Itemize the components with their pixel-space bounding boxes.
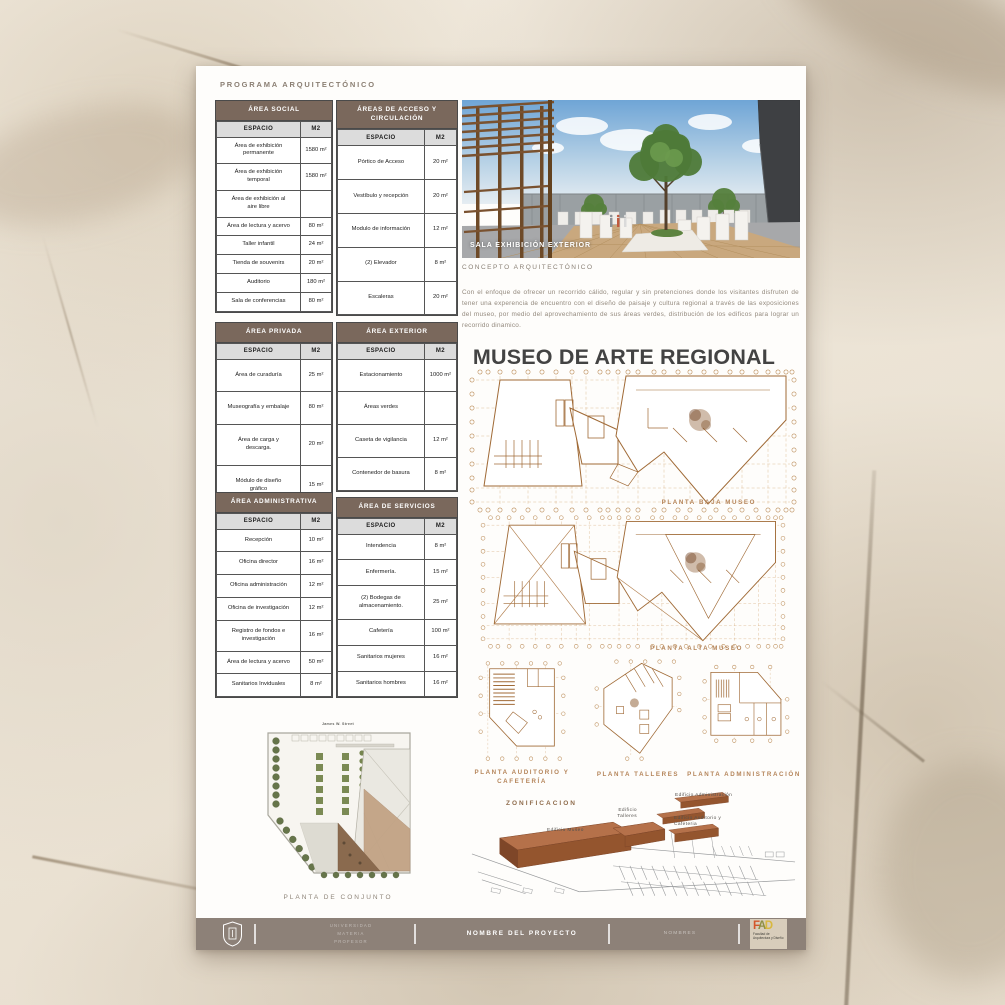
- planta-administracion-label: PLANTA ADMINISTRACIÓN: [684, 770, 804, 779]
- space-name: Áreas verdes: [338, 392, 425, 425]
- space-name: Sanitarios mujeres: [338, 645, 425, 671]
- column-header: M2: [300, 121, 331, 137]
- edificio-auditorio-label: Edificio Auditorio y Cafeteria: [674, 816, 722, 828]
- table-row: Enfermería.15 m²: [338, 560, 457, 586]
- footer-divider: [608, 924, 610, 944]
- space-name: Modulo de información: [338, 213, 425, 247]
- space-area-value: 20 m²: [424, 180, 456, 214]
- space-area-value: 80 m²: [300, 392, 331, 425]
- planta-baja-drawing: [468, 368, 798, 514]
- column-header: M2: [424, 518, 456, 534]
- space-area-value: 80 m²: [300, 217, 331, 236]
- planta-talleres-label: PLANTA TALLERES: [586, 770, 690, 779]
- space-name: Pórtico de Acceso: [338, 146, 425, 180]
- table-row: Cafetería100 m²: [338, 619, 457, 645]
- exterior-render-image: SALA EXHIBICIÓN EXTERIOR: [462, 100, 800, 258]
- space-name: Museografía y embalaje: [217, 392, 301, 425]
- space-name: Área de carga y descarga.: [217, 425, 301, 466]
- footer-divider: [738, 924, 740, 944]
- footer-university-line: UNIVERSIDAD: [286, 922, 416, 930]
- table-row: Escaleras20 m²: [338, 281, 457, 315]
- concepto-heading: CONCEPTO ARQUITECTÓNICO: [462, 264, 594, 271]
- table-row: Registro de fondos e investigación16 m²: [217, 620, 332, 651]
- space-name: Sala de conferencias: [217, 292, 301, 311]
- footer-divider: [414, 924, 416, 944]
- zonificacion-label: ZONIFICACION: [506, 800, 577, 807]
- space-name: Sanitarios hombres: [338, 671, 425, 697]
- marble-background: PROGRAMA ARQUITECTÓNICO ÁREA SOCIALESPAC…: [0, 0, 1005, 1005]
- table-area-social: ÁREA SOCIALESPACIOM2Área de exhibición p…: [215, 100, 333, 313]
- space-area-value: 1580 m²: [300, 137, 331, 164]
- space-area-value: 100 m²: [424, 619, 456, 645]
- table-title: ÁREAS DE ACCESO Y CIRCULACIÓN: [337, 101, 457, 129]
- table-areas-acceso-circulacion: ÁREAS DE ACCESO Y CIRCULACIÓNESPACIOM2Pó…: [336, 100, 458, 316]
- table-row: Sanitarios hombres16 m²: [338, 671, 457, 697]
- student-names: NOMBRES: [624, 931, 736, 936]
- space-name: Escaleras: [338, 281, 425, 315]
- planta-administracion-plan: [690, 658, 800, 764]
- space-name: Oficina de investigación: [217, 598, 301, 621]
- marble-vein: [0, 83, 210, 248]
- table-row: Pórtico de Acceso20 m²: [338, 146, 457, 180]
- planta-conjunto-label: PLANTA DE CONJUNTO: [240, 894, 436, 901]
- space-area-value: 180 m²: [300, 273, 331, 292]
- space-name: Área de lectura y acervo: [217, 217, 301, 236]
- table-row: Sala de conferencias80 m²: [217, 292, 332, 311]
- edificio-museo-label: Edificio Museo: [547, 828, 584, 834]
- column-header: ESPACIO: [338, 130, 425, 146]
- space-area-value: 80 m²: [300, 292, 331, 311]
- table-row: Taller infantil24 m²: [217, 236, 332, 255]
- space-name: Cafetería: [338, 619, 425, 645]
- column-header: M2: [300, 513, 331, 529]
- table-row: Área de exhibición temporal1580 m²: [217, 164, 332, 191]
- space-area-value: 12 m²: [424, 425, 456, 458]
- space-area-value: 20 m²: [300, 255, 331, 274]
- space-name: Área de lectura y acervo: [217, 651, 301, 674]
- marble-vein: [880, 760, 1005, 980]
- presentation-board: PROGRAMA ARQUITECTÓNICO ÁREA SOCIALESPAC…: [196, 66, 806, 950]
- title-block-footer: UNIVERSIDAD MATERIA PROFESOR NOMBRE DEL …: [196, 918, 806, 950]
- render-drawing: [462, 100, 800, 258]
- planta-conjunto-plan: James W. Street: [240, 723, 436, 891]
- table-title: ÁREA SOCIAL: [216, 101, 332, 121]
- table-title: ÁREA DE SERVICIOS: [337, 498, 457, 518]
- space-area-value: 12 m²: [300, 575, 331, 598]
- space-area-value: 8 m²: [424, 247, 456, 281]
- space-name: Área de exhibición al aire libre: [217, 190, 301, 217]
- marble-vein: [821, 680, 925, 762]
- table-row: Área de carga y descarga.20 m²: [217, 425, 332, 466]
- space-area-value: 16 m²: [300, 552, 331, 575]
- space-area-value: 8 m²: [424, 458, 456, 491]
- footer-university-block: UNIVERSIDAD MATERIA PROFESOR: [286, 922, 416, 946]
- table-row: Intendencia8 m²: [338, 534, 457, 560]
- space-name: Vestíbulo y recepción: [338, 180, 425, 214]
- table-row: Museografía y embalaje80 m²: [217, 392, 332, 425]
- planta-auditorio-plan: [464, 658, 580, 764]
- space-name: Sanitarios Inviduales: [217, 674, 301, 697]
- planta-auditorio-label: PLANTA AUDITORIO Y CAFETERÍA: [464, 768, 580, 787]
- table-row: Sanitarios mujeres16 m²: [338, 645, 457, 671]
- footer-materia-line: MATERIA: [286, 930, 416, 938]
- space-area-value: [424, 392, 456, 425]
- page-title: PROGRAMA ARQUITECTÓNICO: [220, 80, 376, 89]
- planta-talleres-plan: [586, 658, 690, 764]
- column-header: M2: [424, 343, 456, 359]
- table-row: Caseta de vigilancia12 m²: [338, 425, 457, 458]
- space-area-value: 8 m²: [424, 534, 456, 560]
- table-row: (2) Elevador8 m²: [338, 247, 457, 281]
- column-header: ESPACIO: [338, 343, 425, 359]
- planta-alta-label: PLANTA ALTA MUSEO: [650, 645, 743, 652]
- space-name: Registro de fondos e investigación: [217, 620, 301, 651]
- university-shield-icon: [222, 921, 243, 947]
- space-area-value: 25 m²: [424, 586, 456, 620]
- space-area-value: 16 m²: [300, 620, 331, 651]
- table-row: Área de lectura y acervo50 m²: [217, 651, 332, 674]
- table-row: Tienda de souvenirs20 m²: [217, 255, 332, 274]
- table-row: Modulo de información12 m²: [338, 213, 457, 247]
- table-row: Área de lectura y acervo80 m²: [217, 217, 332, 236]
- planta-auditorio-drawing: [464, 658, 580, 764]
- table-row: Áreas verdes: [338, 392, 457, 425]
- space-area-value: 12 m²: [424, 213, 456, 247]
- fad-letters: FAD: [753, 921, 772, 932]
- fad-logo: FAD Facultad de Arquitectura y Diseño: [750, 919, 787, 949]
- table-row: Vestíbulo y recepción20 m²: [338, 180, 457, 214]
- planta-baja-plan: PLANTA BAJA MUSEO: [468, 368, 798, 514]
- column-header: M2: [300, 343, 331, 359]
- space-area-value: 15 m²: [424, 560, 456, 586]
- space-name: Taller infantil: [217, 236, 301, 255]
- table-row: Oficina de investigación12 m²: [217, 598, 332, 621]
- space-name: Intendencia: [338, 534, 425, 560]
- table-title: ÁREA ADMINISTRATIVA: [216, 493, 332, 513]
- table-area-privada: ÁREA PRIVADAESPACIOM2Área de curaduría25…: [215, 322, 333, 508]
- planta-baja-label: PLANTA BAJA MUSEO: [662, 499, 756, 506]
- table-area-servicios: ÁREA DE SERVICIOSESPACIOM2Intendencia8 m…: [336, 497, 458, 698]
- column-header: ESPACIO: [217, 121, 301, 137]
- table-row: Área de curaduría25 m²: [217, 359, 332, 392]
- marble-vein: [844, 470, 877, 1005]
- table-row: (2) Bodegas de almacenamiento.25 m²: [338, 586, 457, 620]
- fad-caption: Facultad de Arquitectura y Diseño: [753, 933, 784, 940]
- table-row: Sanitarios Inviduales8 m²: [217, 674, 332, 697]
- space-name: Caseta de vigilancia: [338, 425, 425, 458]
- space-area-value: 1000 m²: [424, 359, 456, 392]
- table-area-administrativa: ÁREA ADMINISTRATIVAESPACIOM2Recepción10 …: [215, 492, 333, 698]
- space-name: Tienda de souvenirs: [217, 255, 301, 274]
- concepto-paragraph: Con el enfoque de ofrecer un recorrido c…: [462, 287, 799, 331]
- table-row: Oficina director16 m²: [217, 552, 332, 575]
- edificio-talleres-label: Edificio Talleres: [599, 808, 637, 820]
- street-name-label: James W. Street: [240, 722, 436, 726]
- planta-alta-drawing: [468, 514, 798, 650]
- column-header: M2: [424, 130, 456, 146]
- planta-administracion-drawing: [690, 658, 800, 764]
- space-area-value: 50 m²: [300, 651, 331, 674]
- space-area-value: 16 m²: [424, 671, 456, 697]
- project-name: NOMBRE DEL PROYECTO: [434, 930, 610, 937]
- space-area-value: 16 m²: [424, 645, 456, 671]
- table-row: Oficina administración12 m²: [217, 575, 332, 598]
- space-area-value: 20 m²: [424, 146, 456, 180]
- table-area-exterior: ÁREA EXTERIORESPACIOM2Estacionamiento100…: [336, 322, 458, 492]
- table-row: Auditorio180 m²: [217, 273, 332, 292]
- edificio-administracion-label: Edificio Administración: [675, 793, 737, 799]
- space-area-value: 1580 m²: [300, 164, 331, 191]
- space-area-value: 10 m²: [300, 529, 331, 552]
- table-row: Área de exhibición al aire libre: [217, 190, 332, 217]
- column-header: ESPACIO: [217, 343, 301, 359]
- footer-divider: [254, 924, 256, 944]
- space-name: Área de curaduría: [217, 359, 301, 392]
- space-name: Auditorio: [217, 273, 301, 292]
- footer-profesor-line: PROFESOR: [286, 938, 416, 946]
- zonificacion-diagram: ZONIFICACION Edificio Museo Edificio Tal…: [462, 788, 800, 910]
- space-area-value: 20 m²: [424, 281, 456, 315]
- table-row: Contenedor de basura8 m²: [338, 458, 457, 491]
- space-name: (2) Bodegas de almacenamiento.: [338, 586, 425, 620]
- space-area-value: [300, 190, 331, 217]
- space-area-value: 12 m²: [300, 598, 331, 621]
- space-area-value: 20 m²: [300, 425, 331, 466]
- table-title: ÁREA EXTERIOR: [337, 323, 457, 343]
- planta-alta-plan: PLANTA ALTA MUSEO: [468, 514, 798, 654]
- space-name: Contenedor de basura: [338, 458, 425, 491]
- museo-title: MUSEO DE ARTE REGIONAL: [462, 345, 786, 370]
- column-header: ESPACIO: [217, 513, 301, 529]
- space-name: (2) Elevador: [338, 247, 425, 281]
- table-title: ÁREA PRIVADA: [216, 323, 332, 343]
- marble-vein: [41, 235, 98, 428]
- space-name: Oficina administración: [217, 575, 301, 598]
- space-area-value: 25 m²: [300, 359, 331, 392]
- table-row: Estacionamiento1000 m²: [338, 359, 457, 392]
- space-name: Área de exhibición temporal: [217, 164, 301, 191]
- space-area-value: 24 m²: [300, 236, 331, 255]
- space-name: Área de exhibición permanente: [217, 137, 301, 164]
- space-name: Recepción: [217, 529, 301, 552]
- table-row: Recepción10 m²: [217, 529, 332, 552]
- column-header: ESPACIO: [338, 518, 425, 534]
- space-area-value: 8 m²: [300, 674, 331, 697]
- space-name: Estacionamiento: [338, 359, 425, 392]
- planta-conjunto-drawing: [240, 723, 436, 891]
- space-name: Enfermería.: [338, 560, 425, 586]
- table-row: Área de exhibición permanente1580 m²: [217, 137, 332, 164]
- planta-talleres-drawing: [586, 658, 690, 764]
- render-caption: SALA EXHIBICIÓN EXTERIOR: [470, 242, 591, 249]
- space-name: Oficina director: [217, 552, 301, 575]
